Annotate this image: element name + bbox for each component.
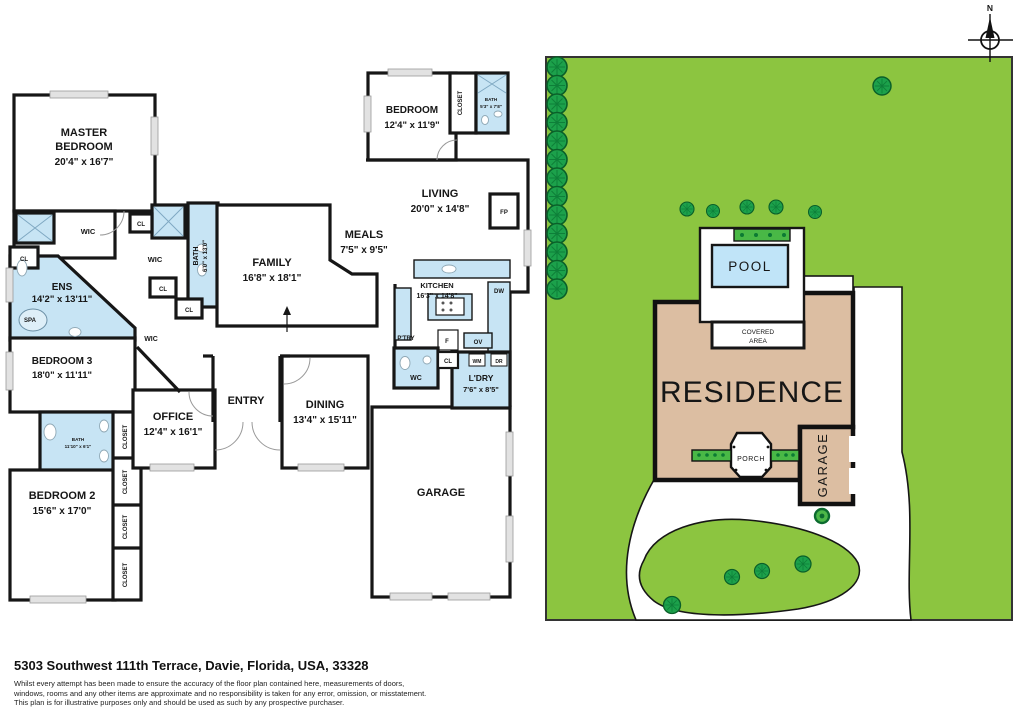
room-master-bedroom	[14, 95, 155, 211]
wc-label: WC	[410, 375, 422, 382]
side-path	[804, 276, 853, 293]
bedroomtop-label: BEDROOM	[386, 105, 438, 116]
site-garage-label: GARAGE	[815, 433, 830, 498]
closet-label: CLOSET	[123, 470, 129, 495]
north-needle	[986, 17, 995, 38]
property-address: 5303 Southwest 111th Terrace, Davie, Flo…	[14, 658, 426, 673]
room-dining	[282, 356, 368, 468]
fp-label: FP	[500, 210, 508, 216]
bedroom3-label: BEDROOM 3	[32, 356, 93, 367]
floor-plan: MASTER BEDROOM 20'4" x 16'7" WIC CL ENS …	[6, 69, 531, 603]
porch: PORCH	[731, 433, 771, 477]
master-label-2: BEDROOM	[55, 141, 112, 153]
bathmid-dims: 6'0" x 13'0"	[203, 240, 209, 272]
pool-label: POOL	[728, 259, 772, 274]
living-dims: 20'0" x 14'8"	[411, 204, 470, 215]
bedroomtop-dims: 12'4" x 11'9"	[384, 120, 439, 131]
hall-diagonal-wall	[137, 347, 180, 392]
plan-drawing: POOL COVERED AREA PORCH RESIDENCE GARAGE	[0, 0, 1024, 724]
laundry-label: L'DRY	[469, 373, 494, 383]
office-label: OFFICE	[153, 411, 193, 423]
bedroom3-dims: 18'0" x 11'11"	[32, 370, 92, 381]
office-dims: 12'4" x 16'1"	[144, 427, 203, 438]
kitchen-dims: 16'3" x 14'8"	[416, 293, 457, 300]
ens-label: ENS	[52, 282, 73, 293]
family-dims: 16'8" x 18'1"	[243, 273, 302, 284]
tree-row-left	[547, 57, 567, 299]
dw-label: DW	[494, 289, 504, 295]
room-wc	[394, 348, 438, 388]
entry-label: ENTRY	[228, 395, 266, 407]
fridge-label: F	[445, 339, 449, 345]
family-label: FAMILY	[252, 257, 292, 269]
room-bedroom-top	[368, 73, 456, 160]
disclaimer-line-1: Whilst every attempt has been made to en…	[14, 679, 426, 689]
stove	[436, 298, 464, 315]
bedroom2-label: BEDROOM 2	[29, 490, 96, 502]
garage-door	[849, 436, 856, 462]
cl-label: CL	[185, 308, 193, 314]
ens-dims: 14'2" x 13'11"	[32, 294, 93, 305]
kitchen-label: KITCHEN	[420, 281, 453, 290]
pantry-label: P'TRY	[397, 336, 414, 342]
shower-master	[16, 213, 54, 243]
tree-icon	[873, 77, 891, 95]
wic-label: WIC	[148, 255, 163, 264]
disclaimer-line-3: This plan is for illustrative purposes o…	[14, 698, 426, 708]
cl-label: CL	[20, 257, 28, 263]
laundry-dims: 7'6" x 8'5"	[463, 385, 499, 394]
cl-label: CL	[444, 359, 452, 365]
master-dims: 20'4" x 16'7"	[55, 157, 114, 168]
meals-dims: 7'5" x 9'5"	[340, 245, 388, 256]
bath2-label: BATH	[72, 437, 85, 442]
garage-label: GARAGE	[417, 487, 465, 499]
room-family	[217, 205, 377, 326]
bathtop-label: BATH	[485, 97, 498, 102]
meals-label: MEALS	[345, 229, 384, 241]
residence-label: RESIDENCE	[660, 376, 844, 409]
bath2-dims: 11'10" x 6'1"	[65, 444, 92, 449]
deck-planter	[734, 229, 790, 241]
garage-door	[849, 468, 856, 494]
closet-label: CLOSET	[123, 515, 129, 540]
footer: 5303 Southwest 111th Terrace, Davie, Flo…	[14, 658, 426, 708]
spa-label: SPA	[24, 318, 37, 324]
master-label-1: MASTER	[61, 127, 108, 139]
cl-label: CL	[137, 222, 145, 228]
site-plan: POOL COVERED AREA PORCH RESIDENCE GARAGE	[546, 57, 1012, 620]
dining-label: DINING	[306, 399, 345, 411]
room-garage	[372, 407, 510, 597]
compass: N	[968, 3, 1013, 62]
dining-dims: 13'4" x 15'11"	[293, 415, 357, 426]
bush-by-garage	[815, 509, 829, 523]
closet-label: CLOSET	[123, 425, 129, 450]
porch-label: PORCH	[737, 456, 765, 463]
wm-label: WM	[473, 359, 482, 365]
covered-area-label: COVERED	[742, 329, 774, 336]
closet-label: CLOSET	[123, 563, 129, 588]
disclaimer-line-2: windows, rooms and any other items are a…	[14, 689, 426, 699]
floorplan-page: POOL COVERED AREA PORCH RESIDENCE GARAGE	[0, 0, 1024, 724]
dr-label: DR	[495, 359, 503, 365]
oven-label: OV	[474, 340, 483, 346]
wic-label: WIC	[144, 336, 158, 343]
closet-label: CLOSET	[458, 91, 464, 116]
covered-area-label2: AREA	[749, 338, 767, 345]
wic-label: WIC	[81, 227, 96, 236]
bathmid-label: BATH	[193, 247, 200, 266]
room-bath-top	[476, 73, 508, 133]
bedroom2-dims: 15'6" x 17'0"	[33, 506, 92, 517]
living-label: LIVING	[422, 188, 459, 200]
compass-n-label: N	[987, 3, 993, 13]
bathtop-dims: 5'3" x 7'8"	[480, 104, 502, 109]
shower-middle	[152, 205, 185, 238]
cl-label: CL	[159, 287, 167, 293]
